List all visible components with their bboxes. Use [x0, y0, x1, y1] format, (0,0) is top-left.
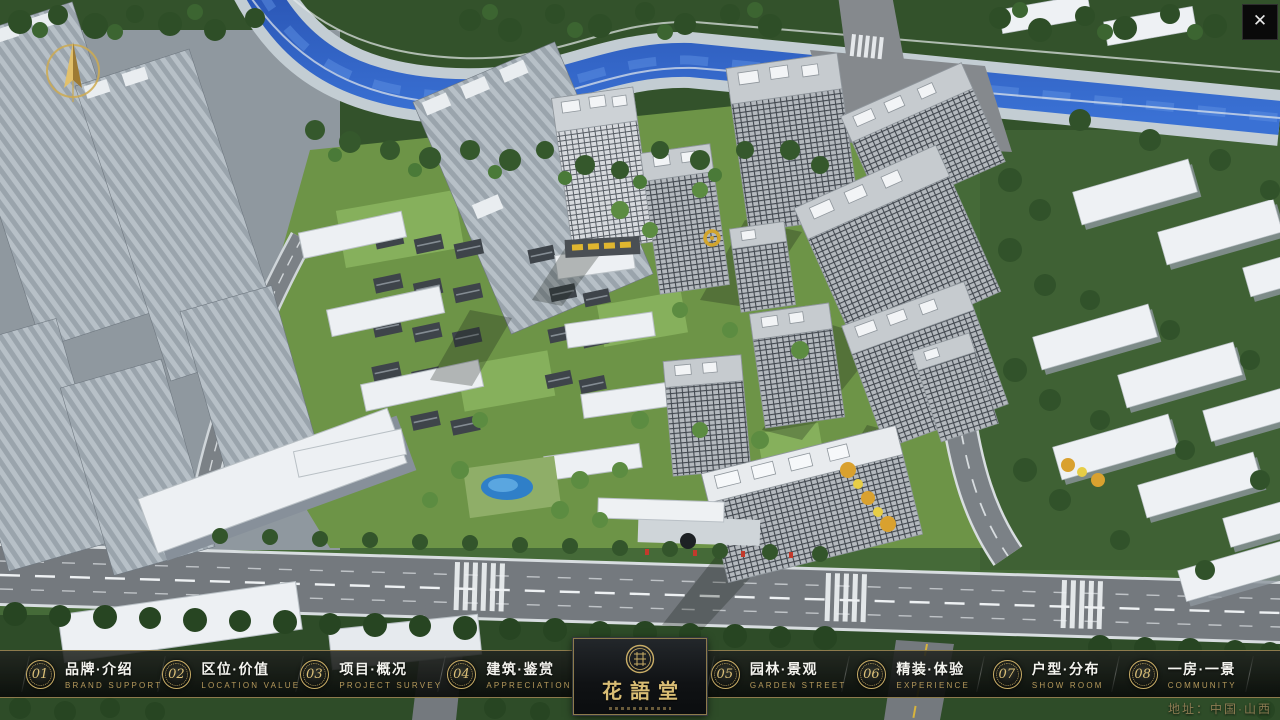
project-logo-plaque[interactable]: 花語堂 [573, 638, 707, 715]
nav-number-badge: 01 [26, 660, 55, 689]
app-window: ✕ 01 品牌·介绍 BRAND SUPPORT 02 区位·价值 LOCATI… [0, 0, 1280, 720]
project-logo-title: 花語堂 [594, 675, 686, 704]
nav-label-en: BRAND SUPPORT [65, 681, 162, 690]
nav-number-badge: 02 [162, 660, 191, 689]
logo-seal-icon [625, 644, 655, 674]
nav-number-badge: 05 [711, 660, 740, 689]
nav-number-badge: 04 [447, 660, 476, 689]
nav-item-location-value[interactable]: 02 区位·价值 LOCATION VALUE [162, 651, 300, 697]
nav-item-interior-experience[interactable]: 06 精装·体验 EXPERIENCE [846, 651, 981, 697]
nav-label-zh: 品牌·介绍 [65, 659, 133, 679]
nav-label-zh: 区位·价值 [201, 659, 269, 679]
close-button[interactable]: ✕ [1242, 4, 1278, 40]
navbar-right-edge [1250, 651, 1280, 697]
nav-label-zh: 项目·概况 [339, 659, 407, 679]
nav-number-badge: 07 [993, 660, 1022, 689]
compass-icon [46, 44, 100, 98]
project-logo-subtitle-rule [609, 707, 671, 710]
nav-label-en: PROJECT SURVEY [339, 681, 442, 690]
nav-label-en: GARDEN STREET [750, 681, 847, 690]
nav-number-badge: 08 [1129, 660, 1158, 689]
nav-item-garden-landscape[interactable]: 05 园林·景观 GARDEN STREET [711, 651, 847, 697]
nav-label-zh: 户型·分布 [1032, 659, 1100, 679]
nav-label-en: EXPERIENCE [896, 681, 970, 690]
nav-item-floorplan-distribution[interactable]: 07 户型·分布 SHOW ROOM [981, 651, 1116, 697]
nav-item-architecture-appreciation[interactable]: 04 建筑·鉴赏 APPRECIATION [442, 651, 577, 697]
nav-label-zh: 建筑·鉴赏 [486, 659, 554, 679]
navbar-left-edge [0, 651, 26, 697]
nav-label-en: APPRECIATION [486, 681, 571, 690]
nav-number-badge: 06 [857, 660, 886, 689]
nav-label-en: COMMUNITY [1168, 681, 1237, 690]
nav-item-room-view[interactable]: 08 一房·一景 COMMUNITY [1116, 651, 1251, 697]
nav-label-zh: 精装·体验 [896, 659, 964, 679]
nav-label-en: SHOW ROOM [1032, 681, 1104, 690]
nav-label-zh: 一房·一景 [1168, 659, 1236, 679]
project-address: 地址：中国·山西 [1168, 700, 1272, 717]
nav-label-en: LOCATION VALUE [201, 681, 300, 690]
nav-label-zh: 园林·景观 [750, 659, 818, 679]
nav-number-badge: 03 [300, 660, 329, 689]
nav-item-project-overview[interactable]: 03 项目·概况 PROJECT SURVEY [300, 651, 442, 697]
aerial-masterplan-render [0, 0, 1280, 720]
nav-item-brand-intro[interactable]: 01 品牌·介绍 BRAND SUPPORT [26, 651, 162, 697]
